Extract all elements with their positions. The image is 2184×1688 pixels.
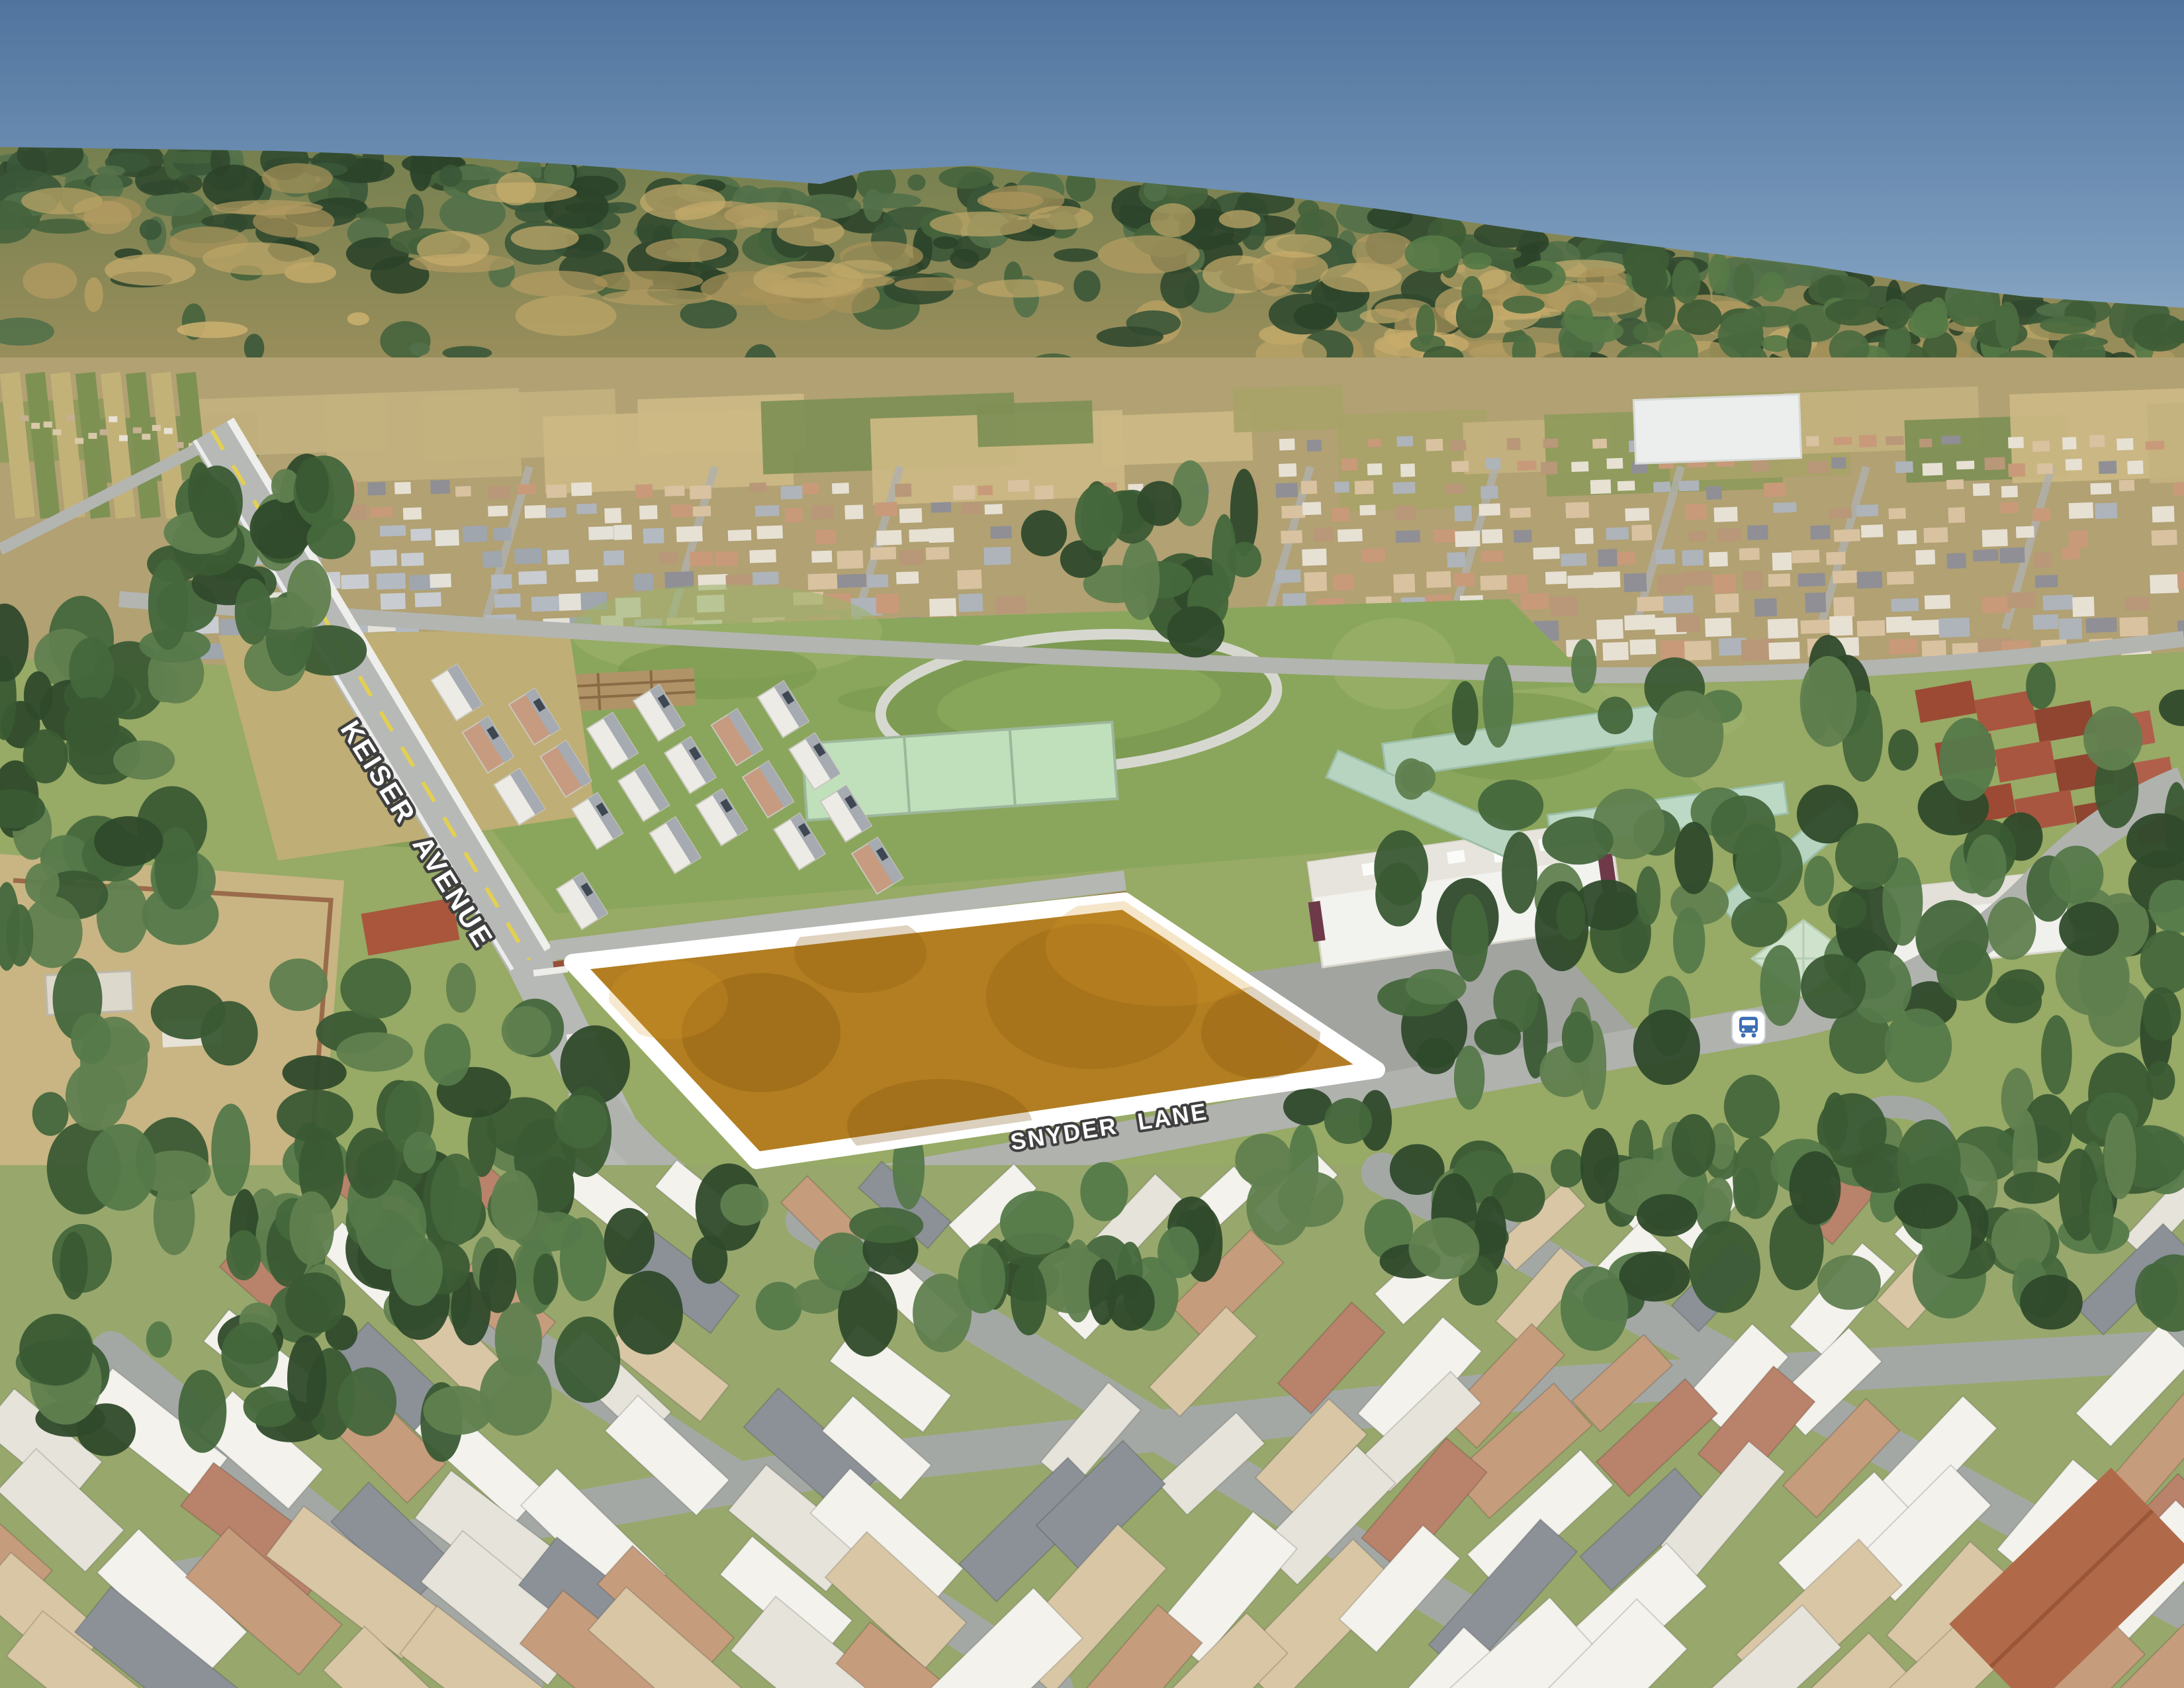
tree [71,1013,111,1064]
tract-house [1829,616,1853,636]
tract-house [1685,504,1707,520]
tract-house [518,484,536,494]
tract-house [1453,573,1475,586]
tract-house [1919,439,1933,447]
tract-house [1743,571,1763,590]
orchard-tree [1461,276,1482,309]
tract-house [1367,463,1383,475]
tract-house [547,549,569,565]
tract-house [1982,529,2008,547]
orchard-tree [1762,335,1790,352]
tract-house [749,549,776,563]
tract-house [1923,527,1948,543]
tract-house [1889,638,1919,654]
hill-grass-patch [511,226,579,250]
tract-house [1684,641,1711,661]
tract-house [1304,572,1327,592]
tree [430,1154,482,1246]
orchard-tree [1733,263,1754,301]
tract-house [2127,461,2144,475]
tract-house [1334,481,1349,492]
tree [1478,780,1543,831]
tree [296,457,329,513]
tract-house [1361,548,1386,563]
hill-tree [97,165,125,176]
distant-building [119,435,128,441]
tract-house [1281,505,1305,518]
tract-house [995,596,1026,614]
hill-grass-patch [593,271,703,291]
tract-house [929,528,954,543]
tract-house [958,593,983,612]
distant-building [109,416,117,422]
tract-house [1808,461,1829,473]
orchard-tree [1881,299,1909,329]
tract-house [1682,549,1704,566]
tree [1939,718,1995,801]
tract-house [2035,575,2058,588]
tree [1080,1162,1128,1221]
tract-house [531,596,561,612]
tract-house [1517,461,1536,471]
tract-house [1925,594,1950,609]
tract-house [876,530,902,545]
hill-tree [908,174,926,191]
tree [340,959,411,1019]
tract-house [635,484,653,498]
hill-grass-patch [23,263,77,299]
tree [1409,1217,1480,1279]
tree [191,465,243,538]
tract-house [1565,502,1589,518]
tract-house [926,547,950,560]
tract-house [837,574,866,588]
tree [533,1254,559,1305]
tree [1817,1255,1881,1310]
tree [211,1103,250,1196]
tract-house [676,526,703,542]
tree [1760,945,1800,1026]
tree [814,1233,870,1291]
tract-house [1433,529,1457,543]
orchard-tree [1623,242,1668,281]
tree [1542,817,1614,865]
tract-house [1663,595,1694,614]
tract-house [1946,553,1966,569]
tree [221,1322,278,1387]
orchard-tree [1564,301,1593,335]
tract-house [785,508,803,523]
hill-grass-patch [213,200,323,215]
tree [1551,1149,1584,1188]
tract-house [1426,439,1443,451]
tract-house [929,598,956,618]
tract-house [1897,530,1917,545]
tree [24,671,53,720]
tract-house [1313,528,1334,541]
tree [1828,891,1866,928]
orchard-tree [1510,266,1552,285]
tree [1451,894,1488,982]
tract-house [670,504,692,518]
tract-house [1714,507,1738,522]
tract-house [931,502,951,512]
tree [1674,822,1713,894]
tree [94,816,163,867]
tree [154,1178,195,1255]
tract-house [1396,530,1420,543]
tract-house [1301,481,1317,494]
aerial-scene-svg: KEISER AVENUE SNYDER LANE [0,0,2184,1688]
tract-house [1592,439,1607,449]
tract-house [1598,549,1617,567]
tract-house [983,547,1011,565]
tree [2146,1061,2175,1100]
tract-house [1973,483,1990,496]
orchard-tree [1708,253,1729,293]
hill-grass-patch [1264,234,1332,258]
tree [1137,481,1181,526]
tract-house [1541,461,1558,475]
tract-house [1938,618,1970,637]
tree [555,1317,620,1403]
tract-house [899,508,923,524]
tree [226,1230,261,1280]
bus-stop-icon [1732,1011,1765,1044]
hill-grass-patch [1028,206,1093,230]
tree [1167,606,1224,658]
tract-house [2152,530,2177,545]
tract-house [2145,441,2164,450]
tract-house [546,484,567,498]
tract-house [415,592,441,608]
tree [69,637,114,702]
hill-grass-patch [510,271,608,297]
tract-house [546,508,566,518]
tract-house [1623,573,1647,592]
tract-house [1279,438,1295,450]
tract-house [1631,524,1652,541]
hill-grass-patch [646,238,727,262]
tract-house [1596,619,1623,639]
tract-house [2033,614,2059,630]
tract-house [1543,438,1559,447]
distant-building [31,423,40,429]
tract-house [1886,436,1904,445]
tract-house [1571,461,1588,472]
tract-house [1689,531,1707,542]
tree [2026,663,2056,709]
orchard-tree [1463,252,1492,269]
tract-house [1772,552,1792,571]
tree [1987,897,2036,960]
distant-building [66,415,75,421]
tract-house [802,483,819,494]
hill-tree [439,165,463,187]
tree [336,1032,413,1072]
tract-house [1678,481,1699,492]
tract-house [2008,463,2025,477]
orchard-tree [1404,236,1461,273]
tree [1711,796,1775,856]
tract-house [2062,437,2076,449]
tree [269,959,328,1011]
tree [1000,1191,1074,1254]
tree [1689,1221,1760,1313]
tract-house [349,504,367,520]
tree [560,1217,607,1301]
tree [146,1321,172,1358]
tree [1894,1184,1958,1229]
tract-house [380,525,406,536]
hill-grass-patch [602,289,713,305]
distant-building [53,429,62,435]
tract-house [2069,502,2093,519]
tree [1991,1207,2050,1272]
tree [1375,863,1422,927]
tract-house [1973,549,1999,562]
tree [285,1272,345,1333]
tract-house [491,574,512,589]
tree [283,1055,347,1090]
hill-tree [1298,200,1319,218]
tract-house [1941,436,1960,445]
hill-grass-patch [516,295,617,336]
tract-house [1396,436,1413,446]
tree [756,1282,802,1331]
hill-grass-patch [640,184,725,220]
tract-house [755,505,779,517]
tree [2142,987,2181,1041]
tract-house [401,553,424,567]
tree [1789,1151,1841,1225]
tract-house [1889,508,1906,519]
tract-house [430,480,450,494]
tract-house [1715,593,1739,613]
tract-house [1800,620,1832,634]
tract-house [1657,574,1684,594]
tract-house [1859,435,1877,447]
tree [2004,1172,2060,1203]
tract-house [1637,596,1666,612]
tree [491,1170,538,1241]
hill-grass-patch [1219,210,1261,228]
tract-house [1567,575,1595,588]
tract-house [1279,463,1297,477]
hill-tree [177,322,248,338]
tract-house [341,574,369,589]
hill-tree [347,312,369,326]
tree [87,1124,156,1211]
tract-house [1533,547,1559,559]
tract-house [867,574,888,587]
tract-house [752,571,779,585]
orchard-tree [2040,316,2093,334]
tree [495,1302,542,1377]
tract-house [832,483,849,494]
tract-house [1768,618,1798,639]
tract-house [2099,461,2117,474]
tree [2049,845,2103,904]
tree [287,560,332,628]
tract-house [909,529,931,542]
tract-house [1717,528,1742,541]
tract-house [1507,575,1528,594]
tree [1011,1262,1046,1335]
tract-house [2066,459,2082,471]
tree [1557,892,1586,940]
tract-house [1747,525,1768,540]
tract-house [2173,482,2184,496]
tree [403,1131,436,1173]
tract-house [1909,620,1940,635]
hill-tree [140,219,161,240]
tract-house [2119,480,2135,491]
tract-house [1368,439,1381,447]
tract-house [1481,550,1504,562]
tract-house [1982,596,2011,614]
tree [1633,1009,1700,1085]
tract-house [1655,549,1675,565]
tract-house [1507,438,1521,450]
tree [958,1243,1005,1313]
hill-tree [409,342,430,355]
tract-house [2062,547,2080,560]
tract-house [1768,573,1791,586]
tree [2089,1179,2114,1250]
tract-house [957,569,981,589]
hill-grass-patch [105,254,196,285]
tree [287,1335,326,1422]
tract-house [1426,571,1451,588]
distant-building [164,428,173,434]
tree [1724,1074,1780,1138]
hill-grass-patch [496,172,536,206]
orchard-tree [1503,296,1545,314]
tract-house [953,485,976,500]
tract-house [463,526,488,543]
tract-house [514,548,542,565]
tree [235,579,272,645]
tract-house [962,502,982,514]
hill-tree [1073,270,1101,301]
tract-house [1895,461,1913,473]
tree [113,741,175,780]
tract-house [1482,529,1503,543]
field-patch [1101,410,1253,465]
tract-house [1008,480,1030,492]
tract-house [895,483,911,497]
tree [2020,1275,2083,1330]
tract-house [1705,618,1731,637]
tract-house [985,504,1003,514]
tract-house [1624,614,1655,630]
orchard-tree [1416,305,1435,345]
hill-grass-patch [930,212,1033,237]
tree [1454,1045,1484,1109]
tract-house [1826,551,1846,565]
tract-house [1561,553,1587,566]
tract-house [2177,571,2184,589]
tract-house [1625,508,1649,521]
tract-house [690,551,713,566]
tract-house [482,551,503,568]
tract-house [1653,482,1670,493]
tree [1571,639,1596,693]
tract-house [876,594,899,614]
tract-house [1629,639,1656,655]
tract-house [455,486,471,496]
tree [1324,1098,1372,1144]
tract-house [1857,620,1886,637]
tract-house [1575,528,1594,544]
tract-house [1709,552,1728,567]
tract-house [634,573,654,591]
tract-house [1480,575,1508,590]
tract-house [1856,504,1878,517]
tree [1636,867,1661,925]
tree [446,963,476,1013]
tract-house [494,593,521,608]
tree [1801,954,1866,1019]
tract-house [2125,596,2150,611]
hill-tree [1097,326,1163,347]
tree [1835,823,1898,890]
tree [424,1023,471,1086]
tree [1637,1194,1698,1237]
tract-house [488,486,510,500]
tract-house [369,507,392,518]
tract-house [1806,436,1819,446]
tract-house [1984,457,2005,470]
tree [554,1095,608,1149]
tract-house [1915,549,1935,565]
hill-grass-patch [262,164,333,194]
field-patch [977,400,1093,447]
tract-house [643,528,664,543]
tree [1452,681,1479,745]
tree [1704,1177,1733,1219]
tract-house [756,526,783,539]
tract-house [837,550,863,569]
orchard-tree [1913,302,1948,335]
tract-house [1682,571,1711,586]
tract-house [1447,552,1465,568]
tract-house [403,507,422,520]
tract-house [1550,596,1578,616]
tree [1966,834,2007,897]
tract-house [1450,440,1467,451]
tree [479,1248,516,1313]
tree [19,1314,93,1386]
tract-house [693,506,711,516]
tract-house [1275,483,1298,498]
tree [1395,758,1428,800]
hill-grass-patch [977,279,1064,297]
tree [1021,510,1067,557]
tree [1107,1275,1155,1331]
tract-house [1514,530,1532,543]
tract-house [1395,505,1415,520]
tree [1800,656,1857,747]
tract-house [1810,525,1830,539]
tract-house [1946,479,1964,489]
distant-building [133,428,142,434]
tract-house [1676,614,1700,632]
tract-house [576,503,597,514]
tract-house [1281,530,1302,543]
distant-building [100,430,109,436]
